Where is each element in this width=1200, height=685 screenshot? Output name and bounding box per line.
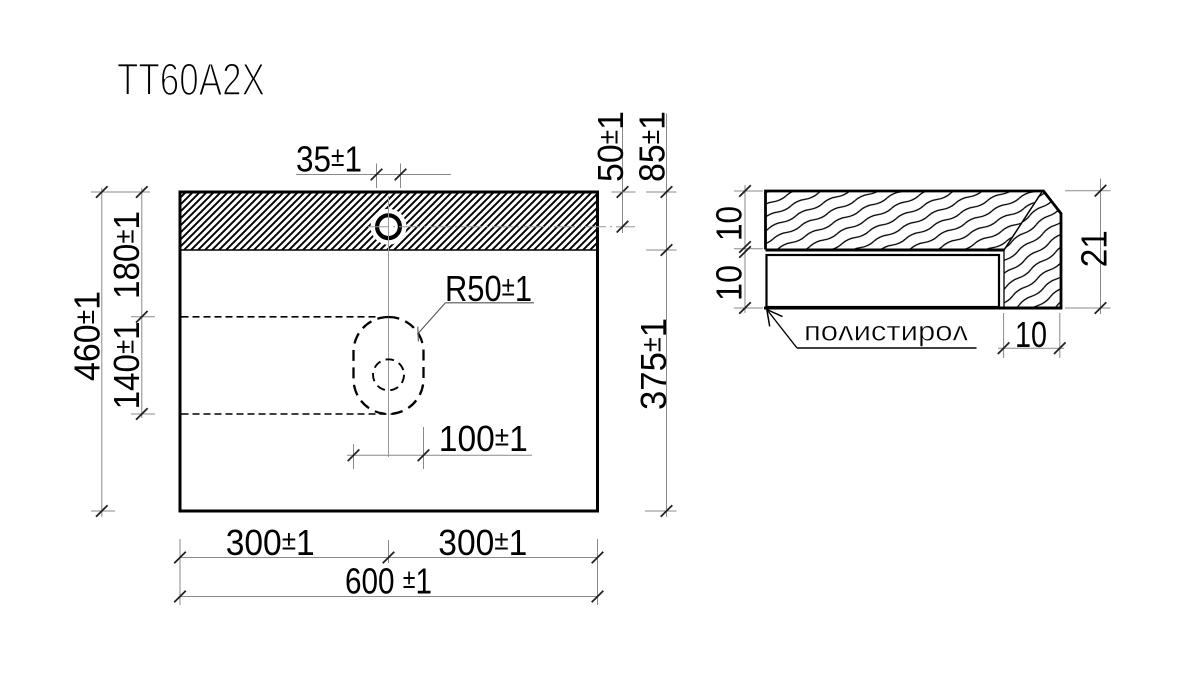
- svg-text:375±1: 375±1: [633, 318, 674, 410]
- svg-text:180±1: 180±1: [106, 211, 147, 299]
- svg-text:TT60A2X: TT60A2X: [117, 54, 265, 105]
- svg-text:600 ±1: 600 ±1: [345, 561, 432, 602]
- svg-text:поʌистироʌ: поʌистироʌ: [804, 316, 968, 347]
- svg-text:21: 21: [1074, 230, 1115, 267]
- svg-text:100±1: 100±1: [439, 418, 528, 459]
- svg-text:300±1: 300±1: [438, 522, 527, 563]
- svg-text:10: 10: [709, 206, 750, 241]
- svg-text:460±1: 460±1: [67, 291, 108, 381]
- svg-text:50±1: 50±1: [590, 111, 631, 182]
- svg-text:10: 10: [1015, 314, 1047, 355]
- svg-text:R50±1: R50±1: [445, 268, 532, 309]
- svg-text:140±1: 140±1: [106, 321, 147, 409]
- svg-text:10: 10: [709, 265, 750, 301]
- svg-text:35±1: 35±1: [296, 139, 362, 180]
- svg-text:85±1: 85±1: [632, 111, 673, 182]
- svg-text:300±1: 300±1: [226, 522, 315, 563]
